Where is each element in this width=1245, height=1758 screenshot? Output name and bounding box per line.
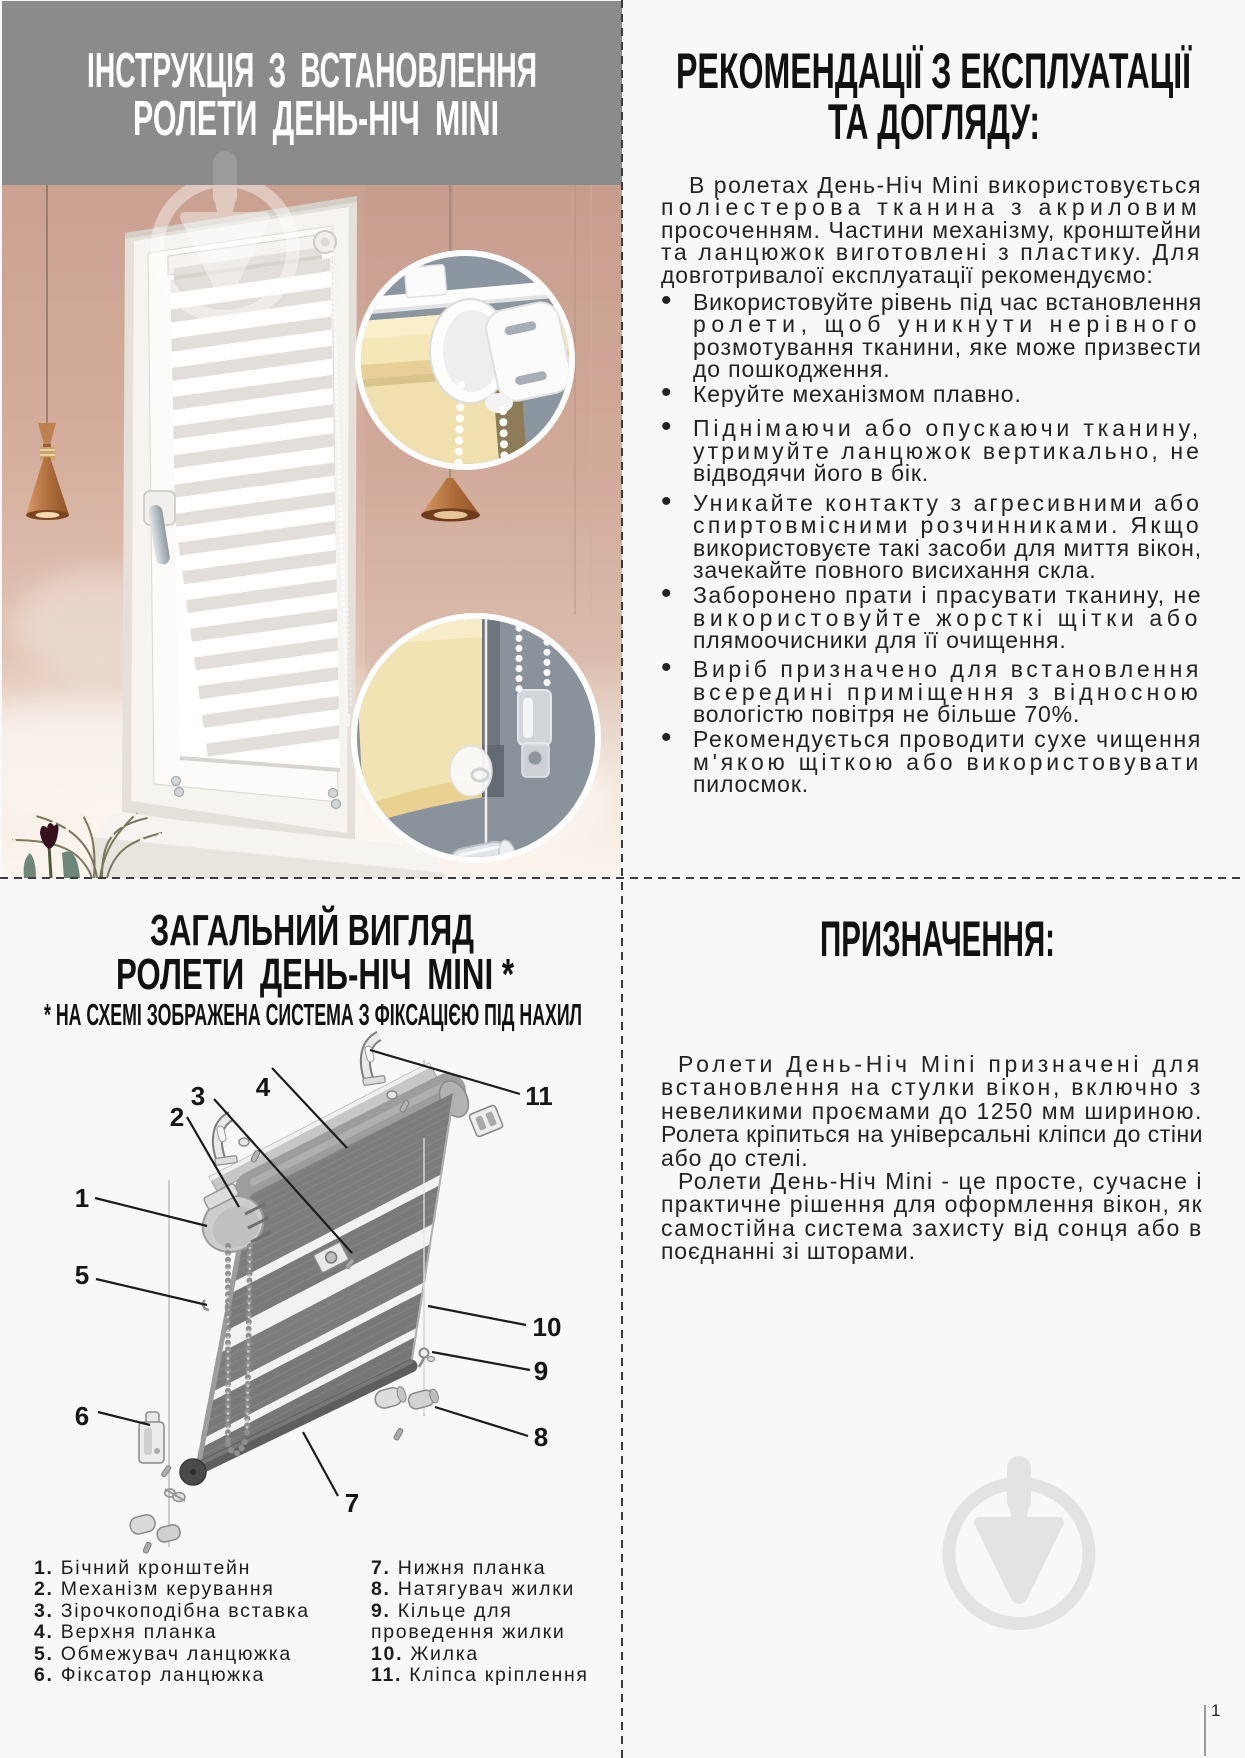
svg-text:5: 5 bbox=[75, 1260, 89, 1290]
svg-text:7: 7 bbox=[345, 1488, 359, 1518]
svg-text:РОЛЕТИ ДЕНЬ-НІЧ MINI *: РОЛЕТИ ДЕНЬ-НІЧ MINI * bbox=[116, 950, 515, 999]
svg-text:ЗАГАЛЬНИЙ ВИГЛЯД: ЗАГАЛЬНИЙ ВИГЛЯД bbox=[150, 904, 474, 955]
svg-text:2: 2 bbox=[170, 1102, 184, 1132]
svg-text:РЕКОМЕНДАЦІЇ З ЕКСПЛУАТАЦІЇ: РЕКОМЕНДАЦІЇ З ЕКСПЛУАТАЦІЇ bbox=[676, 43, 1192, 99]
svg-text:ТА ДОГЛЯДУ:: ТА ДОГЛЯДУ: bbox=[828, 94, 1040, 150]
svg-text:1: 1 bbox=[75, 1183, 89, 1213]
svg-text:8: 8 bbox=[534, 1422, 548, 1452]
svg-text:6: 6 bbox=[75, 1401, 89, 1431]
svg-text:11: 11 bbox=[525, 1081, 553, 1111]
svg-text:ІНСТРУКЦІЯ З ВСТАНОВЛЕННЯ: ІНСТРУКЦІЯ З ВСТАНОВЛЕННЯ bbox=[87, 44, 537, 98]
svg-text:3: 3 bbox=[191, 1081, 205, 1111]
svg-text:4: 4 bbox=[256, 1072, 271, 1102]
svg-text:ПРИЗНАЧЕННЯ:: ПРИЗНАЧЕННЯ: bbox=[820, 911, 1055, 967]
svg-text:РОЛЕТИ ДЕНЬ-НІЧ MINI: РОЛЕТИ ДЕНЬ-НІЧ MINI bbox=[133, 92, 499, 146]
svg-text:9: 9 bbox=[534, 1356, 548, 1386]
svg-text:10: 10 bbox=[533, 1312, 562, 1342]
